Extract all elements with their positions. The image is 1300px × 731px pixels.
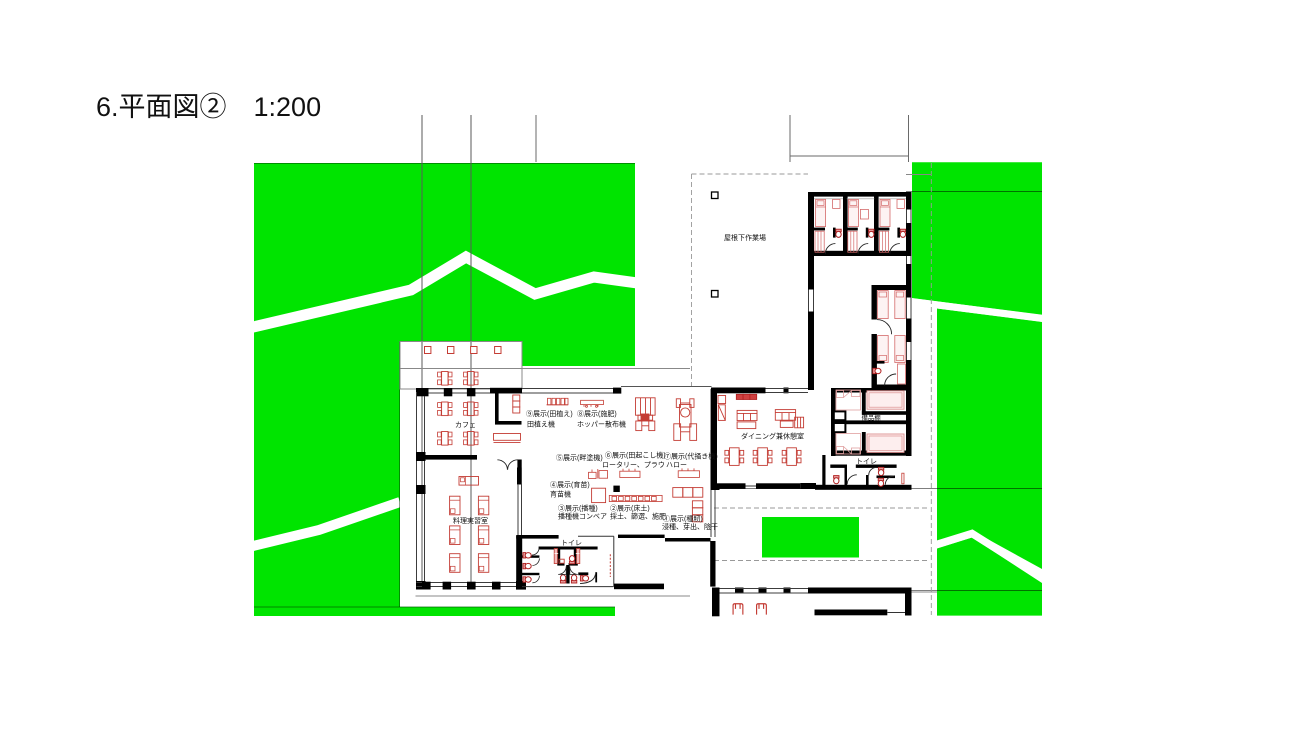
svg-text:⑧展示(施肥): ⑧展示(施肥) [577, 409, 617, 418]
svg-text:屋根下作業場: 屋根下作業場 [724, 233, 766, 242]
svg-text:育苗機: 育苗機 [550, 490, 571, 499]
svg-text:⑤展示(畔塗機): ⑤展示(畔塗機) [556, 453, 603, 462]
svg-text:トイレ: トイレ [561, 540, 582, 547]
svg-text:田植え機: 田植え機 [527, 420, 555, 429]
svg-text:⑨展示(田植え): ⑨展示(田植え) [526, 409, 573, 418]
svg-text:①展示(種籾): ①展示(種籾) [663, 514, 703, 523]
svg-text:⑥展示(田起こし機): ⑥展示(田起こし機) [605, 451, 666, 460]
svg-text:ホッパー散布機: ホッパー散布機 [577, 420, 626, 429]
svg-text:採土、篩選、施肥: 採土、篩選、施肥 [610, 512, 666, 521]
svg-text:浸種、芽出、陰干: 浸種、芽出、陰干 [662, 522, 718, 531]
svg-text:ロータリー、プラウ: ロータリー、プラウ [602, 460, 665, 469]
svg-text:ダイニング兼休憩室: ダイニング兼休憩室 [741, 432, 804, 441]
svg-text:ハロー: ハロー [666, 462, 687, 469]
svg-text:備品棚: 備品棚 [862, 413, 881, 422]
svg-text:トイレ: トイレ [856, 459, 877, 466]
svg-text:②展示(床土): ②展示(床土) [610, 504, 650, 513]
svg-text:播種機コンベア: 播種機コンベア [558, 512, 607, 521]
svg-text:6.平面図② 1:200: 6.平面図② 1:200 [96, 92, 321, 122]
svg-text:⑦展示(代掻き機): ⑦展示(代掻き機) [664, 452, 718, 461]
svg-text:カフェ: カフェ [455, 421, 476, 429]
svg-text:④展示(育苗): ④展示(育苗) [550, 480, 590, 489]
svg-text:料理実習室: 料理実習室 [453, 516, 488, 525]
svg-text:③展示(播種): ③展示(播種) [558, 504, 598, 513]
